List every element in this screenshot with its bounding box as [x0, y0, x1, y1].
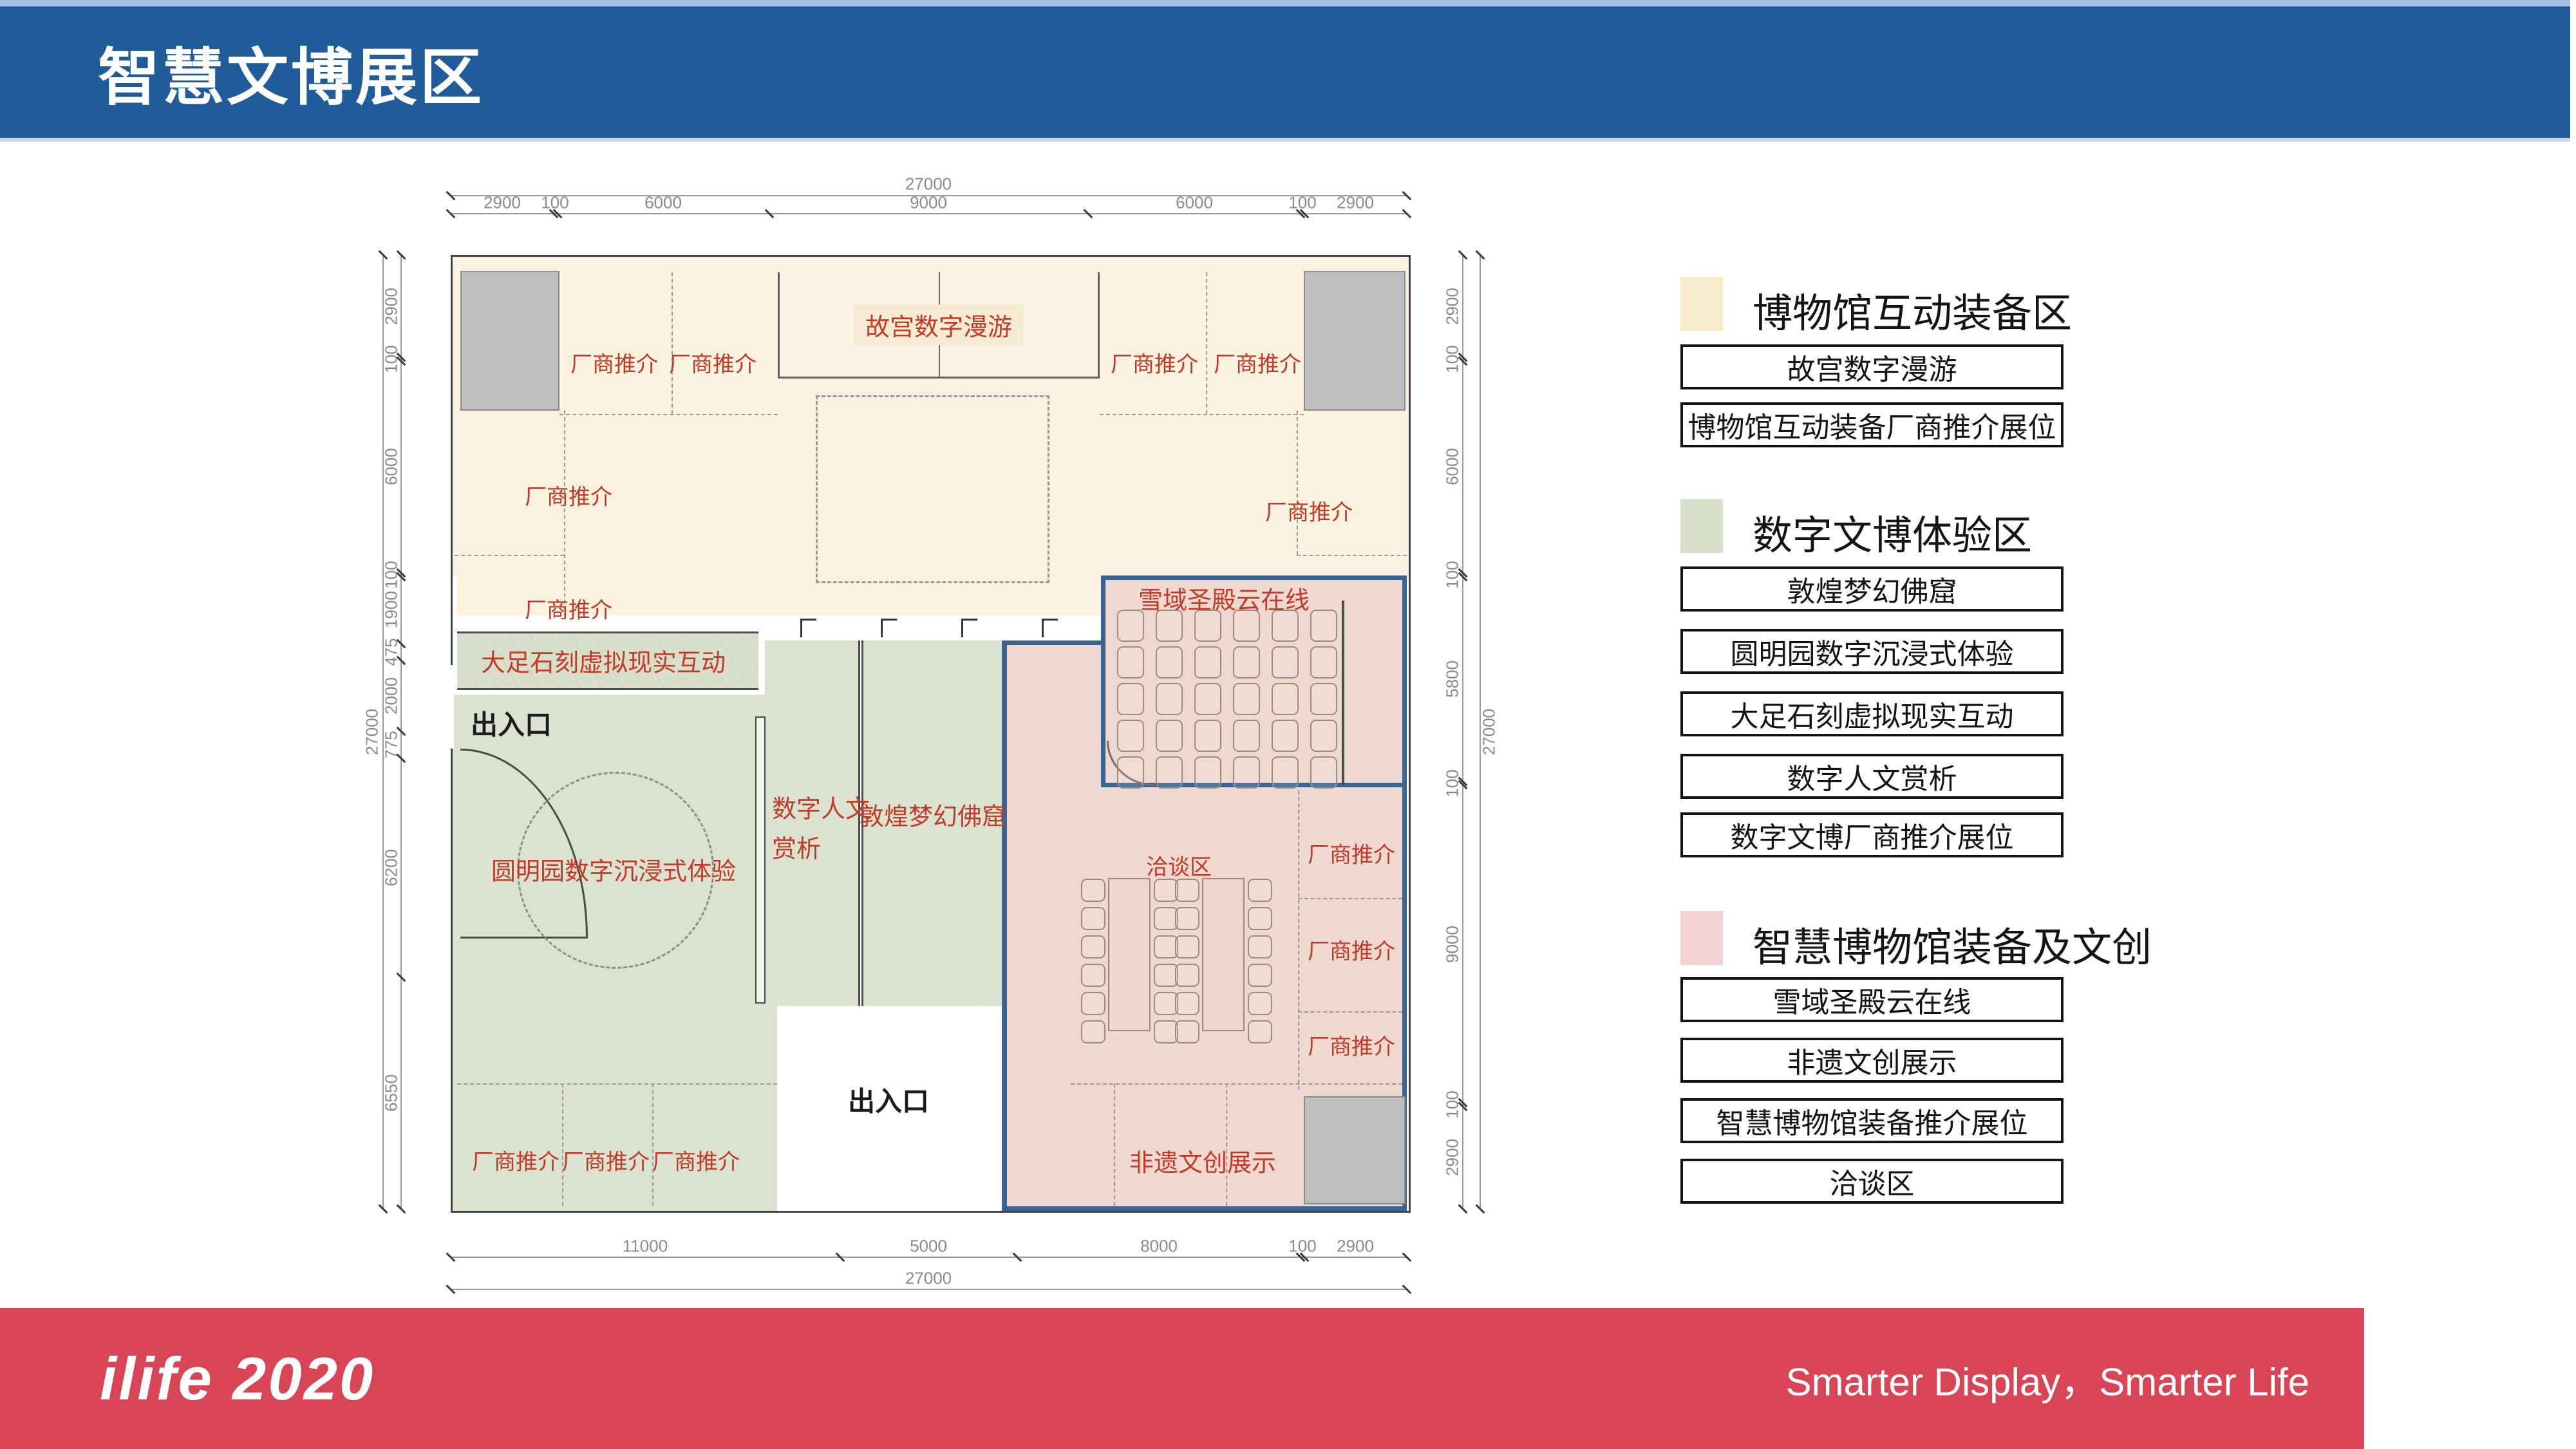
- booth-label: 厂商推介: [525, 593, 612, 624]
- room-feiyi-label: 非遗文创展示: [1129, 1143, 1276, 1179]
- screen-wall: [755, 716, 766, 1004]
- dashed-stage-area: [816, 395, 1049, 583]
- dim-text: 100: [1443, 769, 1463, 797]
- booth-divider: [1297, 555, 1407, 556]
- meeting-chairs: [1175, 879, 1199, 1043]
- wall-blue-bottom: [1002, 1206, 1407, 1211]
- dim-line-top-segments: [451, 213, 1407, 214]
- booth-label: 厂商推介: [1111, 347, 1198, 379]
- booth-divider: [564, 411, 565, 617]
- dim-text: 2900: [1337, 1237, 1374, 1257]
- dim-text: 6000: [382, 448, 402, 485]
- booth-label: 厂商推介: [1265, 495, 1353, 527]
- stair-mark-icon: [1042, 619, 1058, 637]
- legend-title-smart: 智慧博物馆装备及文创: [1753, 915, 2152, 973]
- dim-text: 27000: [905, 174, 952, 194]
- room-dazu-label: 大足石刻虚拟现实互动: [481, 643, 726, 678]
- stair-mark-icon: [800, 619, 816, 637]
- meeting-chairs: [1248, 879, 1272, 1043]
- legend-item: 非遗文创展示: [1680, 1038, 2064, 1083]
- dim-text: 2900: [1443, 1139, 1463, 1176]
- booth-label: 厂商推介: [1308, 934, 1395, 966]
- dim-text: 100: [1288, 193, 1316, 213]
- booth-label: 厂商推介: [525, 480, 612, 511]
- meeting-table: [1108, 878, 1151, 1031]
- legend-item: 雪域圣殿云在线: [1680, 977, 2064, 1022]
- dim-text: 1900: [382, 591, 402, 628]
- dim-text: 9000: [910, 193, 947, 213]
- dim-text: 8000: [1140, 1237, 1178, 1257]
- booth-label: 厂商推介: [472, 1145, 559, 1176]
- booth-divider: [1114, 1083, 1115, 1206]
- dim-text: 2900: [1443, 288, 1463, 325]
- dim-text: 6000: [644, 193, 682, 213]
- dim-text: 6200: [382, 849, 402, 886]
- booth-label: 厂商推介: [1214, 347, 1301, 379]
- dim-text: 27000: [1480, 709, 1500, 755]
- room-yuanmingyuan-label: 圆明园数字沉浸式体验: [491, 852, 736, 887]
- ilife-logo: ilife 2020: [100, 1344, 375, 1414]
- room-dunhuang-label: 敦煌梦幻佛窟: [860, 797, 1006, 832]
- booth-divider: [457, 1083, 777, 1085]
- dim-text: 5800: [1443, 660, 1463, 698]
- service-box-top-right: [1304, 271, 1406, 411]
- dim-text: 11000: [623, 1237, 668, 1257]
- legend-item: 圆明园数字沉浸式体验: [1680, 629, 2064, 674]
- room-gugong: 故宫数字漫游: [778, 272, 1100, 379]
- legend-title-digital: 数字文博体验区: [1753, 503, 2032, 561]
- legend-swatch-museum: [1680, 277, 1723, 331]
- service-box-top-left: [460, 271, 559, 411]
- legend-title-museum: 博物馆互动装备区: [1753, 281, 2072, 339]
- booth-label: 厂商推介: [570, 347, 658, 379]
- booth-divider: [1298, 1011, 1402, 1013]
- legend-item: 数字文博厂商推介展位: [1680, 812, 2064, 857]
- meeting-table: [1202, 878, 1245, 1031]
- meeting-chairs: [1081, 879, 1105, 1043]
- booth-divider: [672, 272, 673, 414]
- legend-item: 洽谈区: [1680, 1159, 2064, 1204]
- stair-mark-icon: [881, 619, 897, 637]
- service-box-bottom-right: [1304, 1096, 1406, 1204]
- wall-blue-left: [1002, 640, 1007, 1211]
- footer-slogan: Smarter Display，Smarter Life: [1785, 1351, 2309, 1407]
- dim-text: 27000: [905, 1269, 952, 1289]
- dim-text: 9000: [1443, 926, 1463, 963]
- legend-item: 大足石刻虚拟现实互动: [1680, 691, 2064, 736]
- dim-text: 27000: [362, 709, 382, 755]
- dim-line-bottom-total: [451, 1289, 1407, 1290]
- legend-swatch-digital: [1680, 499, 1723, 553]
- booth-label: 厂商推介: [1308, 1029, 1395, 1061]
- booth-divider: [559, 414, 778, 415]
- floor-plan: 故宫数字漫游: [451, 255, 1411, 1213]
- legend-swatch-smart: [1680, 911, 1723, 965]
- dim-text: 6550: [382, 1074, 402, 1112]
- booth-divider: [1298, 898, 1402, 899]
- stair-mark-icon: [961, 619, 977, 637]
- slide: 智慧文博展区 故宫数字漫游: [0, 0, 2576, 1449]
- dim-text: 2000: [382, 677, 402, 715]
- footer-bar: ilife 2020 Smarter Display，Smarter Life: [0, 1308, 2364, 1449]
- dim-text: 2900: [484, 193, 521, 213]
- booth-divider: [1297, 411, 1298, 555]
- dim-text: 100: [1288, 1237, 1316, 1257]
- dim-line-bottom-segments: [451, 1257, 1407, 1258]
- entrance-label-bottom: 出入口: [848, 1080, 929, 1119]
- dim-text: 6000: [1176, 193, 1213, 213]
- booth-divider: [1298, 790, 1299, 1090]
- header-bar: 智慧文博展区: [0, 0, 2570, 142]
- entrance-label-left: 出入口: [471, 704, 552, 743]
- booth-divider: [1100, 414, 1304, 415]
- dim-text: 5000: [910, 1237, 947, 1257]
- legend-item: 敦煌梦幻佛窟: [1680, 566, 2064, 612]
- wall-blue-top: [1004, 640, 1101, 645]
- room-renwen-label: 数字人文: [772, 789, 870, 825]
- page-title: 智慧文博展区: [98, 28, 484, 117]
- dim-line-right-segments: [1462, 255, 1463, 1209]
- legend-item: 故宫数字漫游: [1680, 344, 2064, 389]
- booth-label: 厂商推介: [652, 1145, 740, 1176]
- legend-item: 智慧博物馆装备推介展位: [1680, 1098, 2064, 1143]
- booth-divider: [1071, 1083, 1402, 1085]
- booth-divider: [455, 555, 564, 556]
- room-renwen-label2: 赏析: [772, 829, 821, 865]
- audience-chair-grid: [1117, 610, 1349, 793]
- dim-text: 2900: [1337, 193, 1374, 213]
- legend-item: 博物馆互动装备厂商推介展位: [1680, 402, 2064, 447]
- legend-item: 数字人文赏析: [1680, 754, 2064, 799]
- dim-text: 2900: [382, 288, 402, 325]
- booth-divider: [1206, 272, 1207, 414]
- booth-label: 厂商推介: [1308, 837, 1395, 869]
- dim-text: 6000: [1443, 448, 1463, 485]
- room-qiatan-label: 洽谈区: [1146, 850, 1212, 881]
- room-xueyu-label: 雪域圣殿云在线: [1138, 581, 1310, 616]
- booth-label: 厂商推介: [562, 1145, 650, 1176]
- entrance-gap-left: [450, 665, 454, 749]
- booth-label: 厂商推介: [669, 347, 757, 379]
- room-gugong-label: 故宫数字漫游: [854, 304, 1024, 345]
